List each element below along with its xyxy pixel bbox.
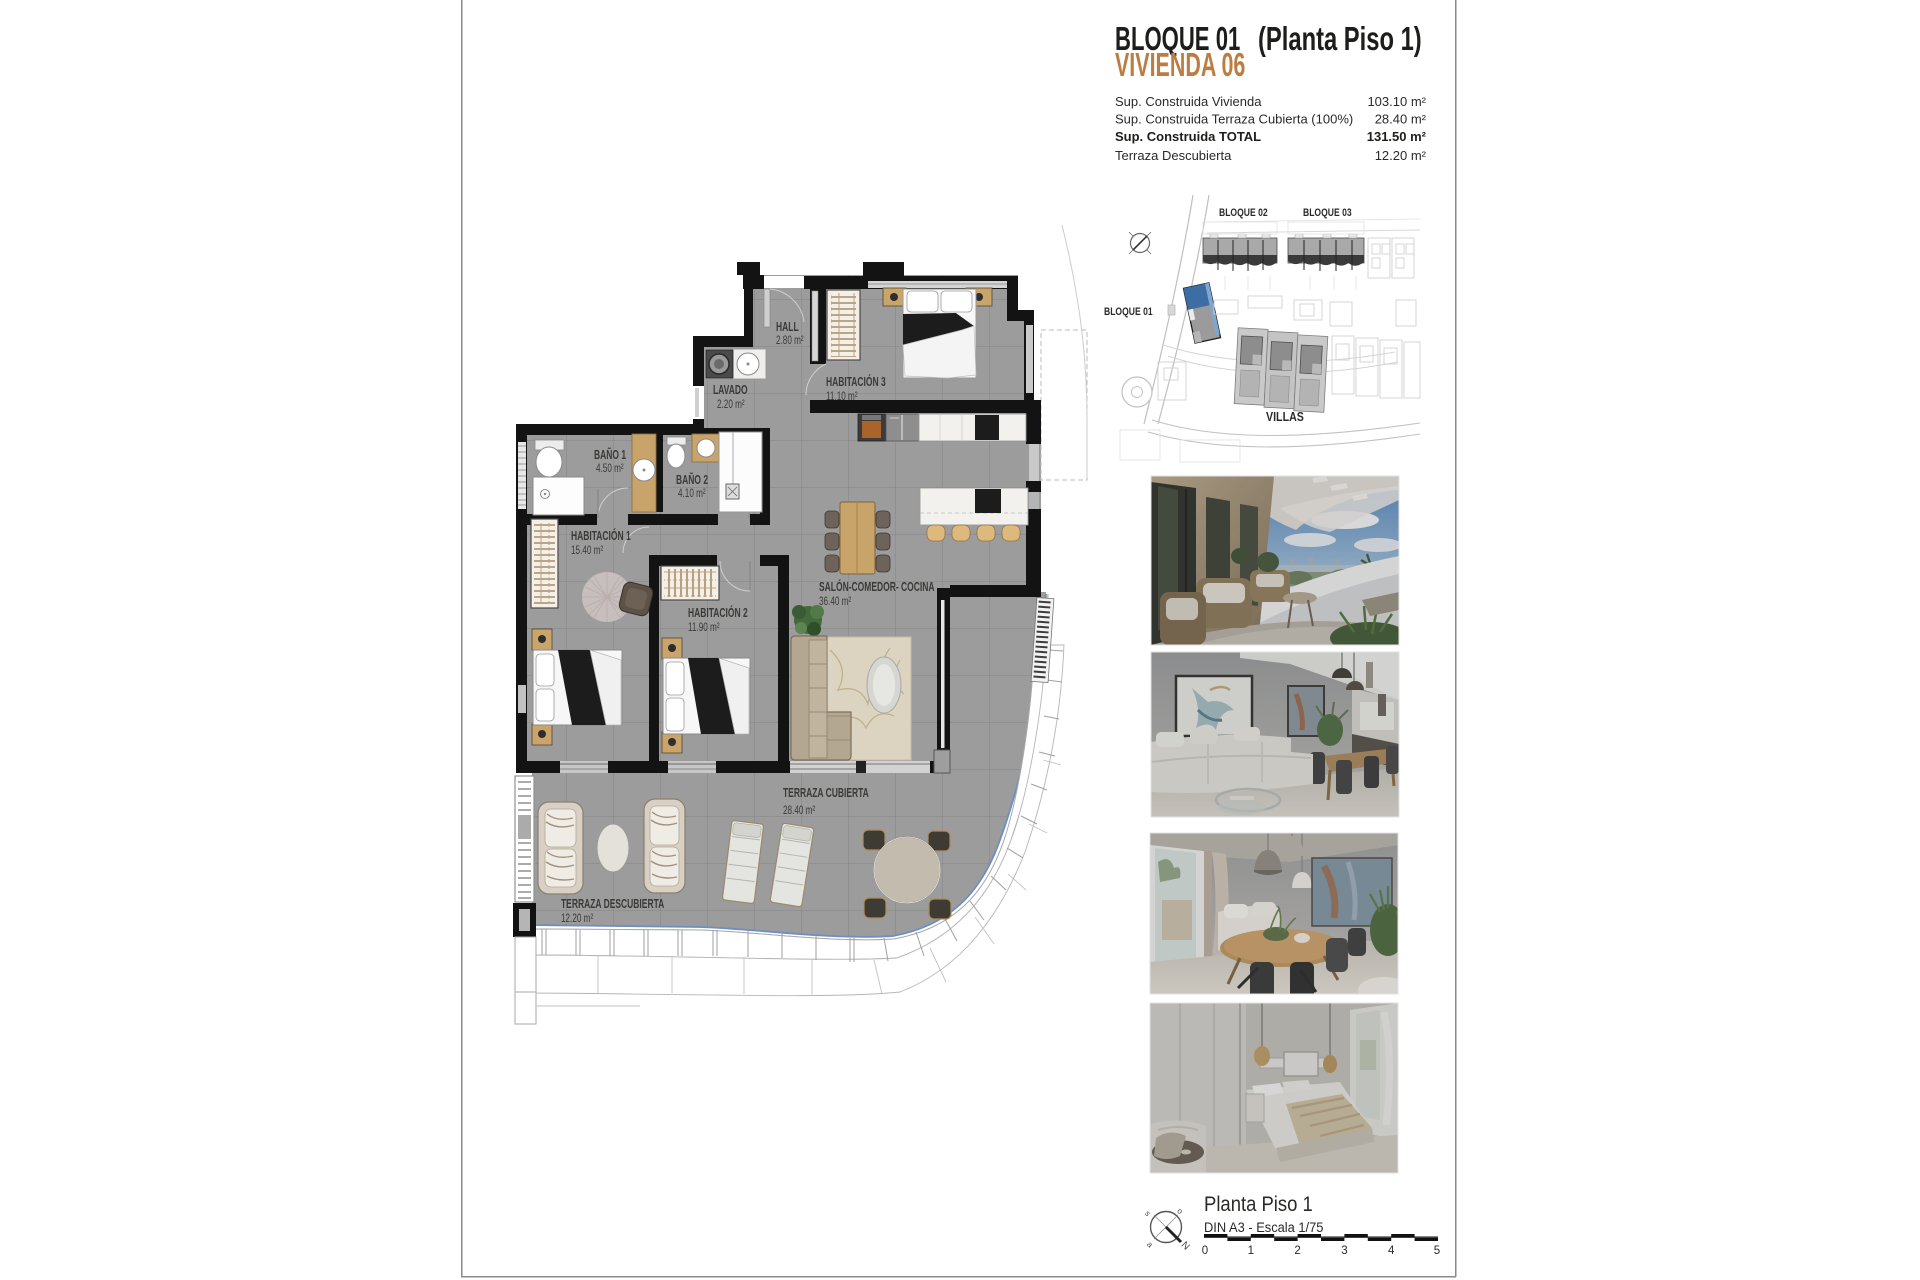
svg-text:28.40 m²: 28.40 m²	[1375, 112, 1427, 127]
svg-text:5: 5	[1434, 1245, 1440, 1257]
svg-text:3: 3	[1341, 1245, 1347, 1257]
svg-text:1: 1	[1248, 1245, 1254, 1257]
svg-text:TERRAZA CUBIERTA: TERRAZA CUBIERTA	[783, 786, 869, 800]
svg-text:VILLAS: VILLAS	[1266, 409, 1304, 424]
svg-text:2: 2	[1294, 1245, 1300, 1257]
svg-text:BAÑO 2: BAÑO 2	[676, 472, 708, 487]
svg-text:2.20 m²: 2.20 m²	[717, 399, 745, 412]
svg-text:BLOQUE 03: BLOQUE 03	[1303, 207, 1352, 219]
svg-text:103.10 m²: 103.10 m²	[1367, 94, 1426, 109]
svg-text:Sup. Construida Terraza Cubier: Sup. Construida Terraza Cubierta (100%)	[1115, 112, 1353, 127]
svg-text:LAVADO: LAVADO	[713, 383, 748, 397]
svg-text:28.40 m²: 28.40 m²	[783, 805, 816, 818]
svg-text:0: 0	[1202, 1245, 1208, 1257]
svg-text:11.10 m²: 11.10 m²	[826, 391, 858, 404]
svg-text:BLOQUE 02: BLOQUE 02	[1219, 207, 1268, 219]
svg-text:12.20 m²: 12.20 m²	[561, 913, 594, 926]
svg-text:4: 4	[1388, 1245, 1395, 1257]
svg-text:VIVIENDA 06: VIVIENDA 06	[1115, 46, 1245, 83]
svg-text:4.10 m²: 4.10 m²	[678, 488, 706, 501]
svg-text:Sup. Construida TOTAL: Sup. Construida TOTAL	[1115, 129, 1261, 144]
svg-text:SALÓN-COMEDOR- COCINA: SALÓN-COMEDOR- COCINA	[819, 579, 935, 594]
svg-text:11.90 m²: 11.90 m²	[688, 622, 720, 635]
svg-text:HALL: HALL	[776, 320, 799, 334]
svg-text:Planta Piso 1: Planta Piso 1	[1204, 1193, 1313, 1216]
svg-text:4.50 m²: 4.50 m²	[596, 463, 624, 476]
svg-text:DIN A3 - Escala 1/75: DIN A3 - Escala 1/75	[1204, 1220, 1323, 1236]
svg-text:36.40 m²: 36.40 m²	[819, 596, 852, 609]
svg-text:TERRAZA DESCUBIERTA: TERRAZA DESCUBIERTA	[561, 897, 664, 911]
svg-text:12.20 m²: 12.20 m²	[1375, 148, 1427, 163]
svg-text:HABITACIÓN 2: HABITACIÓN 2	[688, 605, 748, 620]
svg-text:2.80 m²: 2.80 m²	[776, 335, 804, 348]
svg-text:(Planta Piso 1): (Planta Piso 1)	[1258, 21, 1422, 58]
svg-text:BLOQUE 01: BLOQUE 01	[1104, 306, 1153, 318]
svg-text:131.50 m²: 131.50 m²	[1367, 129, 1427, 144]
svg-text:HABITACIÓN 3: HABITACIÓN 3	[826, 374, 886, 389]
svg-text:HABITACIÓN 1: HABITACIÓN 1	[571, 528, 631, 543]
svg-text:Sup. Construida Vivienda: Sup. Construida Vivienda	[1115, 94, 1262, 109]
svg-text:Terraza Descubierta: Terraza Descubierta	[1115, 148, 1232, 163]
svg-text:BAÑO 1: BAÑO 1	[594, 447, 626, 462]
svg-text:15.40 m²: 15.40 m²	[571, 545, 604, 558]
